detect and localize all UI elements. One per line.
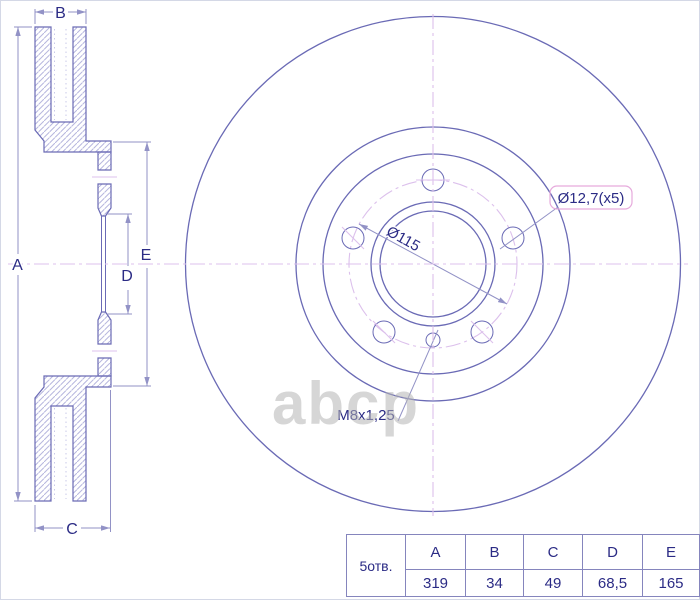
section-hat-upper-a	[98, 152, 111, 170]
col-header-d: D	[582, 535, 642, 569]
watermark: abcp	[272, 374, 420, 434]
section-bottom-ring	[35, 376, 111, 501]
section-hat-upper-b	[98, 184, 111, 216]
spec-table: 5отв. A B C D E 319 34 49 68,5 165	[346, 534, 700, 597]
drawing-labels: A B C D E Ø12,7(x5) Ø115 M8x1,25	[12, 5, 624, 538]
value-a: 319	[405, 569, 465, 596]
pcd-label: Ø115	[383, 223, 422, 255]
drawing-svg: A B C D E Ø12,7(x5) Ø115 M8x1,25	[0, 0, 700, 600]
dim-label-e: E	[141, 247, 152, 264]
bolt-holes-label: Ø12,7(x5)	[558, 190, 625, 207]
dim-label-b: B	[55, 5, 66, 22]
col-header-b: B	[465, 535, 523, 569]
col-header-e: E	[642, 535, 699, 569]
col-header-a: A	[405, 535, 465, 569]
dim-label-a: A	[12, 257, 23, 274]
value-e: 165	[642, 569, 699, 596]
holes-count-cell: 5отв.	[347, 535, 405, 596]
section-top-ring	[35, 27, 111, 152]
brake-disc-drawing: A B C D E Ø12,7(x5) Ø115 M8x1,25 abcp 5о…	[0, 0, 700, 600]
dim-label-c: C	[66, 521, 78, 538]
section-hat-lower-a	[98, 358, 111, 376]
value-c: 49	[523, 569, 582, 596]
value-b: 34	[465, 569, 523, 596]
col-header-c: C	[523, 535, 582, 569]
dim-label-d: D	[121, 268, 133, 285]
section-hat-lower-b	[98, 312, 111, 344]
value-d: 68,5	[582, 569, 642, 596]
